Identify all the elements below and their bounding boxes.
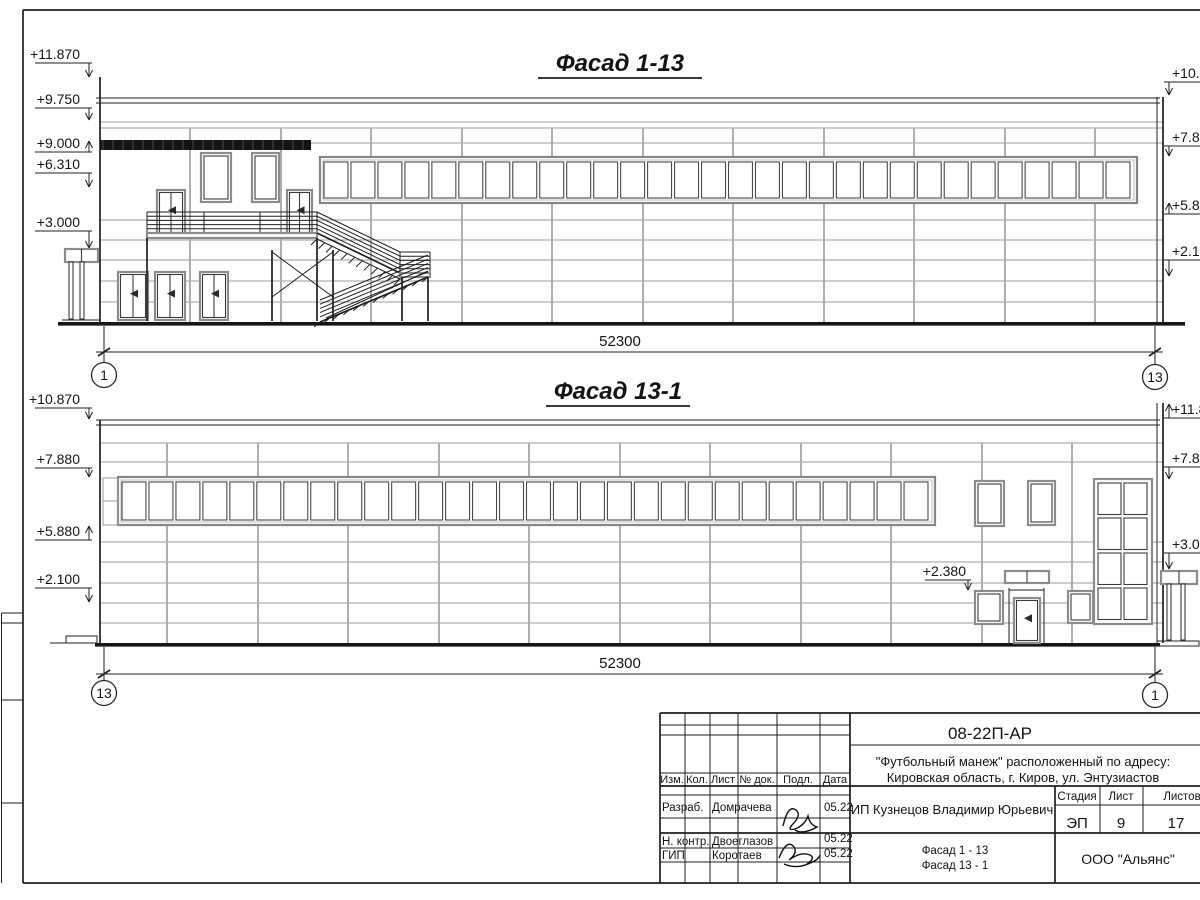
window-pane (351, 162, 375, 198)
window-pane (473, 482, 497, 520)
elevation-value: +11.870 (1172, 401, 1200, 417)
window-pane (634, 482, 658, 520)
window-pane (365, 482, 389, 520)
window-pane (567, 162, 591, 198)
row-date: 05.22 (824, 802, 853, 814)
window-pane (594, 162, 618, 198)
window-pane (607, 482, 631, 520)
window-pane (688, 482, 712, 520)
window-pane (1098, 518, 1121, 550)
window-pane (176, 482, 200, 520)
window-pane (378, 162, 402, 198)
elevation-value: +3.000 (37, 214, 80, 230)
window-pane (392, 482, 416, 520)
elevation-value: +6.310 (37, 156, 80, 172)
window-pane (446, 482, 470, 520)
window-pane (580, 482, 604, 520)
sheets-total: 17 (1168, 815, 1185, 832)
window-pane (1025, 162, 1049, 198)
window-pane (863, 162, 887, 198)
col-date: Дата (823, 774, 848, 786)
balcony-floor (147, 233, 317, 238)
window-pane (1124, 518, 1147, 550)
row-name: Коротаев (712, 850, 762, 862)
window-pane (311, 482, 335, 520)
window-pane (782, 162, 806, 198)
window-pane (661, 482, 685, 520)
elevation-value: +10.870 (1172, 65, 1200, 81)
elevation-value: +7.880 (1172, 129, 1200, 145)
window-pane (621, 162, 645, 198)
window-pane (823, 482, 847, 520)
axis-bubble-label: 1 (1151, 687, 1159, 703)
window-pane (553, 482, 577, 520)
row-role: Разраб. (662, 802, 703, 814)
col-izm: Изм. (660, 774, 684, 786)
project-name-line1: "Футбольный манеж" расположенный по адре… (876, 754, 1170, 769)
window-pane (1098, 588, 1121, 620)
window-pane (230, 482, 254, 520)
col-kol: Кол. (686, 774, 708, 786)
window-pane (203, 482, 227, 520)
elevation-value: +7.880 (1172, 450, 1200, 466)
window-pane (500, 482, 524, 520)
stage-label: Стадия (1057, 791, 1096, 803)
window-pane (338, 482, 362, 520)
window-pane (877, 482, 901, 520)
window-pane (715, 482, 739, 520)
row-date: 05.22 (824, 848, 853, 860)
window-pane (769, 482, 793, 520)
row-name: Двоеглазов (712, 836, 773, 848)
window-pane (149, 482, 173, 520)
row-name: Домрачева (712, 802, 772, 814)
axis-bubble-label: 1 (100, 367, 108, 383)
elevation-value: +11.870 (30, 46, 80, 62)
window-pane (284, 482, 308, 520)
window-pane (540, 162, 564, 198)
elevation-value: +9.000 (37, 135, 80, 151)
window-pane (850, 482, 874, 520)
window-pane (1098, 553, 1121, 585)
window-pane (405, 162, 429, 198)
sheets-label: Листов (1163, 791, 1200, 803)
window-pane (486, 162, 510, 198)
sheet-label: Лист (1109, 791, 1135, 803)
row-date: 05.22 (824, 833, 853, 845)
window-pane (742, 482, 766, 520)
window-pane (1098, 483, 1121, 515)
facade-title: Фасад 1-13 (556, 50, 685, 77)
elevation-value: +7.880 (37, 451, 80, 467)
document-code: 08-22П-АР (948, 724, 1032, 743)
window-pane (944, 162, 968, 198)
window-pane (1079, 162, 1103, 198)
sheet-title-line1: Фасад 1 - 13 (922, 845, 989, 857)
window-pane (836, 162, 860, 198)
window-pane (1106, 162, 1130, 198)
axis-bubble-label: 13 (1147, 369, 1163, 385)
window-pane (917, 162, 941, 198)
window-pane (796, 482, 820, 520)
elevation-value: +2.100 (1172, 243, 1200, 259)
elevation-value: +2.100 (37, 571, 80, 587)
window-pane (904, 482, 928, 520)
window-pane (971, 162, 995, 198)
sheet-number: 9 (1117, 815, 1125, 832)
window-pane (527, 482, 551, 520)
window-pane (324, 162, 348, 198)
window-pane (419, 482, 443, 520)
window-pane (675, 162, 699, 198)
window-pane (122, 482, 146, 520)
window-pane (702, 162, 726, 198)
axis-bubble-label: 13 (96, 685, 112, 701)
window-pane (809, 162, 833, 198)
stage-value: ЭП (1066, 815, 1088, 832)
window-pane (459, 162, 483, 198)
sheet-title-line2: Фасад 13 - 1 (922, 860, 989, 872)
window-pane (729, 162, 753, 198)
window-pane (257, 482, 281, 520)
drawing-sheet: Фасад 1-13 +11.870+9.750+9.000+6.310+3.0… (0, 0, 1200, 900)
window-pane (648, 162, 672, 198)
roof-canopy (100, 140, 311, 150)
client-name: ИП Кузнецов Владимир Юрьевич (851, 802, 1053, 817)
row-role: ГИП (662, 850, 685, 862)
window-pane (1124, 588, 1147, 620)
col-list: Лист (711, 774, 735, 786)
window-pane (513, 162, 537, 198)
elevation-value: +5.880 (37, 523, 80, 539)
dimension-value: 52300 (599, 333, 641, 350)
elevation-value: +5.880 (1172, 197, 1200, 213)
col-podp: Подл. (783, 774, 813, 786)
row-role: Н. контр. (662, 836, 709, 848)
window-pane (432, 162, 456, 198)
company-name: ООО "Альянс" (1081, 851, 1175, 867)
col-doc: № док. (739, 774, 774, 786)
facade-title: Фасад 13-1 (554, 378, 682, 405)
window-pane (1124, 483, 1147, 515)
window-pane (1124, 553, 1147, 585)
project-name-line2: Кировская область, г. Киров, ул. Энтузиа… (887, 770, 1160, 785)
dimension-value: 52300 (599, 655, 641, 672)
window-pane (998, 162, 1022, 198)
window-pane (890, 162, 914, 198)
elevation-value: +2.380 (923, 563, 966, 579)
elevation-value: +9.750 (37, 91, 80, 107)
window-pane (1052, 162, 1076, 198)
elevation-value: +10.870 (29, 391, 80, 407)
elevation-value: +3.000 (1172, 536, 1200, 552)
window-pane (755, 162, 779, 198)
